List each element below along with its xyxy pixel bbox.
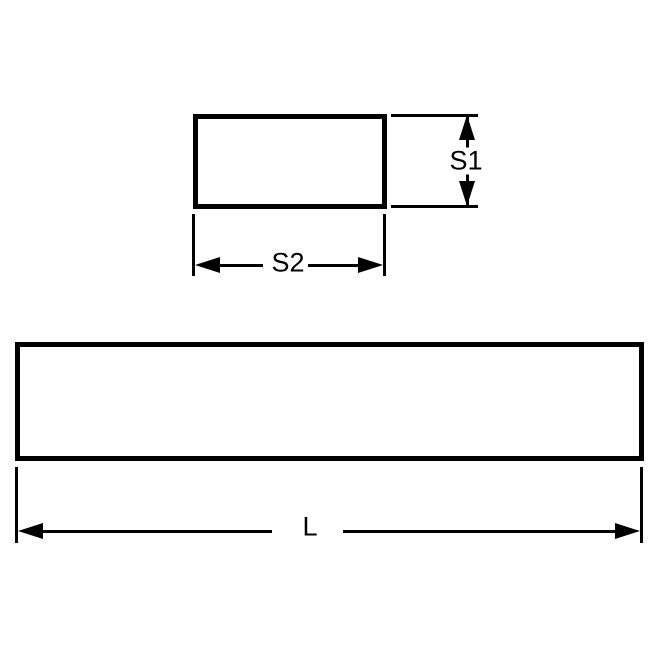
l-extension-line-right (640, 467, 643, 543)
l-arrow-right-icon (615, 523, 640, 539)
l-arrow-left-icon (18, 523, 43, 539)
l-dimension-label: L (302, 514, 317, 541)
side-view-rectangle (15, 342, 644, 461)
l-dimension-line-left (38, 530, 272, 533)
s2-dimension-line-right (308, 264, 364, 267)
s1-arrow-down-icon (459, 181, 475, 206)
s2-dimension-line-left (213, 264, 263, 267)
technical-drawing: S1 S2 L (0, 0, 670, 670)
s2-extension-line-right (383, 214, 386, 276)
l-dimension-line-right (343, 530, 618, 533)
end-view-rectangle (193, 114, 387, 209)
s2-dimension-label: S2 (271, 250, 304, 277)
s1-arrow-up-icon (459, 115, 475, 140)
s2-arrow-right-icon (358, 257, 383, 273)
s2-arrow-left-icon (195, 257, 220, 273)
s1-dimension-label: S1 (449, 148, 482, 175)
